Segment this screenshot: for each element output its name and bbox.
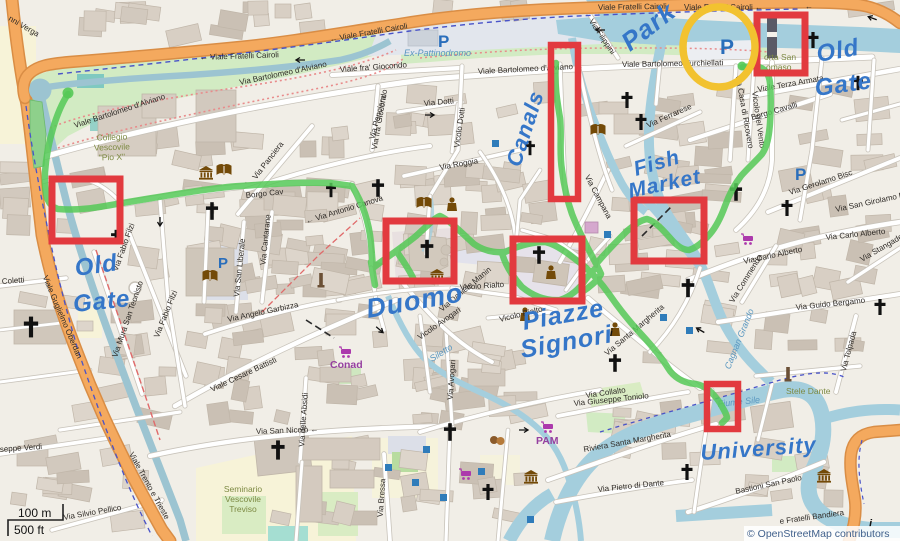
svg-text:© OpenStreetMap contributors: © OpenStreetMap contributors: [747, 528, 890, 540]
svg-text:orta San: orta San: [764, 52, 796, 62]
svg-text:500 ft: 500 ft: [14, 523, 45, 537]
svg-text:Vescovile: Vescovile: [225, 494, 261, 504]
svg-text:P: P: [720, 36, 734, 59]
svg-text:PAM: PAM: [536, 435, 559, 447]
svg-text:P: P: [218, 255, 228, 272]
svg-text:Ex-Pattinodromo: Ex-Pattinodromo: [404, 48, 471, 58]
svg-text:"Pio X": "Pio X": [99, 152, 126, 163]
svg-text:Treviso: Treviso: [229, 504, 257, 514]
svg-text:P: P: [795, 165, 806, 184]
svg-text:←: ←: [805, 2, 813, 11]
svg-text:Stele Dante: Stele Dante: [786, 386, 831, 396]
svg-text:Seminario: Seminario: [224, 484, 263, 494]
svg-text:100 m: 100 m: [18, 506, 51, 520]
svg-text:Conad: Conad: [330, 359, 363, 371]
svg-text:Viale Bartolomeo Turchiellati: Viale Bartolomeo Turchiellati: [622, 58, 724, 69]
svg-text:Coletti: Coletti: [2, 275, 25, 286]
